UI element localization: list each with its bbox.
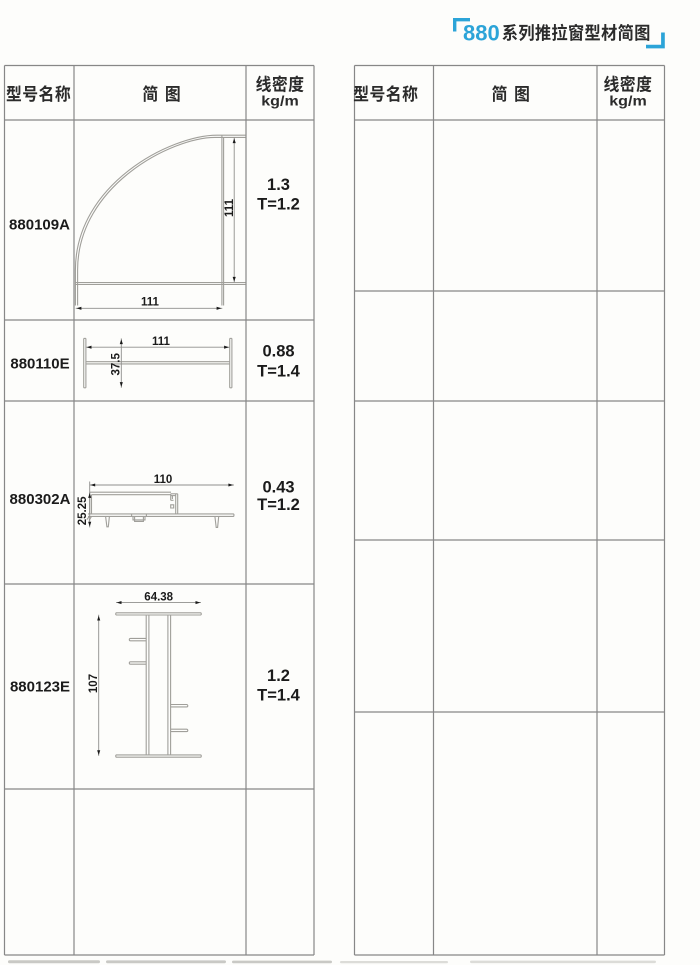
svg-text:0.88: 0.88 — [262, 343, 294, 361]
svg-text:1.3: 1.3 — [267, 176, 290, 194]
svg-text:110: 110 — [154, 474, 173, 486]
svg-text:T=1.2: T=1.2 — [257, 496, 300, 514]
svg-text:880123E: 880123E — [10, 678, 70, 695]
svg-text:0.43: 0.43 — [262, 479, 294, 497]
svg-text:25.25: 25.25 — [77, 496, 89, 525]
svg-text:111: 111 — [224, 198, 236, 217]
svg-text:880109A: 880109A — [9, 217, 70, 234]
svg-text:T=1.4: T=1.4 — [257, 363, 300, 381]
svg-text:107: 107 — [88, 674, 100, 693]
svg-text:T=1.4: T=1.4 — [257, 686, 300, 704]
svg-text:111: 111 — [141, 296, 160, 308]
svg-text:111: 111 — [152, 336, 171, 348]
svg-text:T=1.2: T=1.2 — [257, 195, 300, 213]
svg-text:37.5: 37.5 — [111, 353, 123, 376]
svg-text:880302A: 880302A — [10, 491, 71, 508]
svg-text:64.38: 64.38 — [144, 592, 173, 604]
svg-text:1.2: 1.2 — [267, 667, 290, 685]
svg-text:kg/m: kg/m — [261, 93, 299, 109]
svg-text:880110E: 880110E — [10, 355, 69, 372]
svg-text:880: 880 — [463, 20, 500, 45]
svg-text:kg/m: kg/m — [609, 93, 647, 109]
